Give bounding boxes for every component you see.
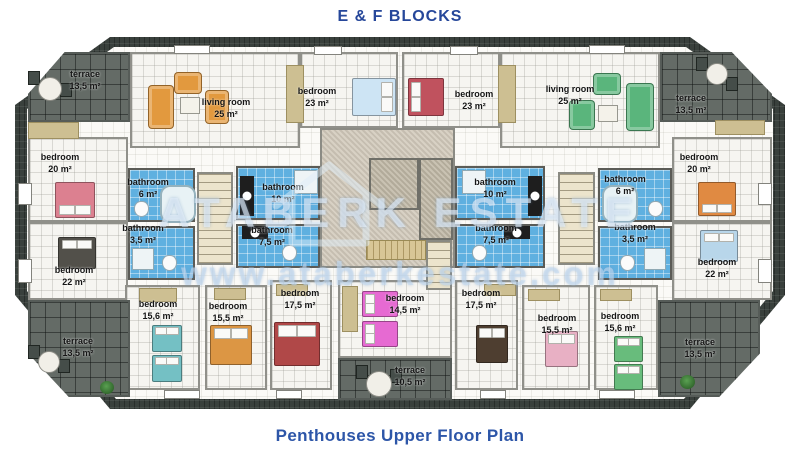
sink-vanity	[240, 176, 254, 216]
room-name: bathroom	[251, 224, 293, 236]
staircase-center	[426, 240, 452, 290]
room-area: 15,5 m²	[541, 324, 572, 336]
toilet	[472, 245, 487, 261]
toilet	[134, 201, 149, 217]
double-bed	[210, 325, 252, 365]
room-area: 13,5 m²	[675, 104, 706, 116]
room-area: 13,5 m²	[684, 348, 715, 360]
potted-plant	[100, 381, 114, 394]
staircase-left	[197, 172, 233, 265]
single-bed	[362, 321, 398, 347]
wardrobe	[498, 65, 516, 123]
room-area: 6 m²	[616, 185, 635, 197]
room-area: 23 m²	[462, 100, 486, 112]
room-label: terrace13,5 m²	[675, 92, 706, 116]
armchair	[593, 73, 621, 95]
room-label: bathroom10 m²	[262, 181, 304, 205]
room-area: 3,5 m²	[622, 233, 648, 245]
round-table	[706, 63, 728, 85]
room-label: bathroom7,5 m²	[251, 224, 293, 248]
window	[314, 46, 342, 55]
sofa	[626, 83, 654, 131]
room-label: bathroom3,5 m²	[122, 222, 164, 246]
room-name: bedroom	[455, 88, 494, 100]
window	[589, 45, 625, 54]
shower	[644, 248, 666, 270]
room-label: bedroom22 m²	[55, 264, 94, 288]
terrace-chair	[726, 77, 738, 91]
coffee-table	[180, 97, 200, 114]
room-area: 15,5 m²	[212, 312, 243, 324]
room-area: 7,5 m²	[259, 236, 285, 248]
room-name: bedroom	[386, 292, 425, 304]
page-title: E & F BLOCKS	[0, 8, 800, 26]
room-label: terrace10,5 m²	[394, 364, 425, 388]
room-name: living room	[202, 96, 251, 108]
room-name: bedroom	[538, 312, 577, 324]
round-table	[366, 371, 392, 397]
double-bed	[352, 78, 396, 116]
room-area: 3,5 m²	[130, 234, 156, 246]
wardrobe	[528, 289, 560, 301]
room-name: terrace	[676, 92, 706, 104]
room-area: 10,5 m²	[394, 376, 425, 388]
room-name: bathroom	[614, 221, 656, 233]
room-label: living room25 m²	[546, 83, 595, 107]
room-label: bedroom23 m²	[298, 85, 337, 109]
room-name: bedroom	[462, 287, 501, 299]
room-label: bathroom10 m²	[474, 176, 516, 200]
window	[18, 183, 32, 205]
room-label: bedroom15,5 m²	[538, 312, 577, 336]
room-area: 10 m²	[483, 188, 507, 200]
single-bed	[614, 364, 643, 390]
window	[758, 259, 772, 283]
room-label: bedroom23 m²	[455, 88, 494, 112]
shower	[132, 248, 154, 270]
sofa	[148, 85, 174, 129]
room-label: bathroom6 m²	[127, 176, 169, 200]
staircase-right	[558, 172, 595, 265]
single-bed	[614, 336, 643, 362]
room-area: 10 m²	[271, 193, 295, 205]
room-label: bedroom17,5 m²	[462, 287, 501, 311]
wooden-landing	[366, 240, 426, 260]
terrace-chair	[356, 365, 368, 379]
room-area: 22 m²	[705, 268, 729, 280]
room-name: bathroom	[262, 181, 304, 193]
room-area: 20 m²	[48, 163, 72, 175]
window	[450, 46, 478, 55]
room-area: 17,5 m²	[284, 299, 315, 311]
room-label: bedroom15,5 m²	[209, 300, 248, 324]
room-area: 17,5 m²	[465, 299, 496, 311]
room-label: bedroom22 m²	[698, 256, 737, 280]
single-bed	[152, 325, 182, 352]
room-name: terrace	[395, 364, 425, 376]
room-name: bedroom	[209, 300, 248, 312]
room-area: 23 m²	[305, 97, 329, 109]
double-bed	[476, 325, 508, 363]
double-bed	[698, 182, 736, 216]
room-area: 15,6 m²	[142, 310, 173, 322]
room-label: terrace13,5 m²	[684, 336, 715, 360]
window	[164, 390, 200, 399]
room-label: bedroom17,5 m²	[281, 287, 320, 311]
room-name: bedroom	[680, 151, 719, 163]
room-name: living room	[546, 83, 595, 95]
double-bed	[545, 331, 578, 367]
toilet	[620, 255, 635, 271]
double-bed	[274, 322, 320, 366]
room-area: 25 m²	[558, 95, 582, 107]
room-name: bathroom	[475, 222, 517, 234]
wardrobe	[600, 289, 632, 301]
room-area: 25 m²	[214, 108, 238, 120]
room-name: bedroom	[139, 298, 178, 310]
toilet	[162, 255, 177, 271]
window	[174, 45, 210, 54]
round-table	[38, 77, 62, 101]
floor-plan: terrace13,5 m² living room25 m² bedroom2…	[14, 33, 786, 415]
wardrobe	[28, 122, 79, 139]
wardrobe	[342, 286, 358, 332]
room-label: terrace13,5 m²	[69, 68, 100, 92]
room-name: bedroom	[698, 256, 737, 268]
room-label: bedroom20 m²	[41, 151, 80, 175]
room-label: bedroom14,5 m²	[386, 292, 425, 316]
double-bed	[408, 78, 444, 116]
double-bed	[55, 182, 95, 218]
room-area: 7,5 m²	[483, 234, 509, 246]
room-label: bathroom3,5 m²	[614, 221, 656, 245]
room-name: bedroom	[298, 85, 337, 97]
room-label: terrace13,5 m²	[62, 335, 93, 359]
room-area: 22 m²	[62, 276, 86, 288]
service-shaft	[419, 158, 453, 240]
room-name: bedroom	[281, 287, 320, 299]
room-name: terrace	[70, 68, 100, 80]
wardrobe	[715, 120, 765, 135]
armchair	[174, 72, 202, 94]
room-label: living room25 m²	[202, 96, 251, 120]
window	[758, 183, 772, 205]
plan-caption: Penthouses Upper Floor Plan	[0, 426, 800, 446]
room-area: 20 m²	[687, 163, 711, 175]
room-area: 13,5 m²	[62, 347, 93, 359]
room-label: bathroom7,5 m²	[475, 222, 517, 246]
room-area: 15,6 m²	[604, 322, 635, 334]
room-label: bathroom6 m²	[604, 173, 646, 197]
window	[276, 390, 302, 399]
wardrobe	[214, 288, 246, 300]
room-name: bathroom	[474, 176, 516, 188]
floor-plan-image: E & F BLOCKS	[0, 0, 800, 454]
room-label: bedroom15,6 m²	[139, 298, 178, 322]
room-name: terrace	[685, 336, 715, 348]
room-area: 14,5 m²	[389, 304, 420, 316]
elevator-shaft	[369, 158, 419, 210]
room-area: 13,5 m²	[69, 80, 100, 92]
room-area: 6 m²	[139, 188, 158, 200]
round-table	[38, 351, 60, 373]
potted-plant	[680, 375, 695, 389]
room-name: bedroom	[55, 264, 94, 276]
coffee-table	[598, 105, 618, 122]
room-name: bathroom	[122, 222, 164, 234]
room-name: terrace	[63, 335, 93, 347]
room-name: bedroom	[41, 151, 80, 163]
room-name: bedroom	[601, 310, 640, 322]
room-name: bathroom	[604, 173, 646, 185]
room-label: bedroom15,6 m²	[601, 310, 640, 334]
room-label: bedroom20 m²	[680, 151, 719, 175]
room-name: bathroom	[127, 176, 169, 188]
window	[480, 390, 506, 399]
toilet	[648, 201, 663, 217]
sink-vanity	[528, 176, 542, 216]
window	[599, 390, 635, 399]
single-bed	[152, 355, 182, 382]
window	[18, 259, 32, 283]
